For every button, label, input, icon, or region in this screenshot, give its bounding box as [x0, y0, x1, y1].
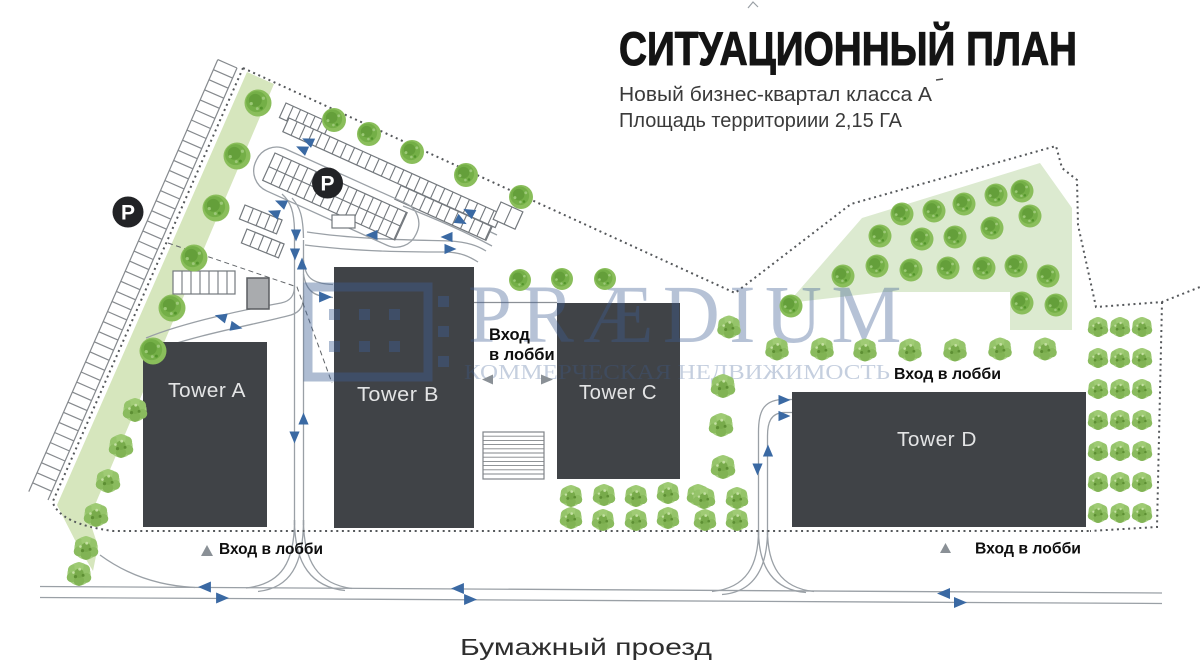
svg-text:Вход в лобби: Вход в лобби: [894, 366, 1001, 383]
svg-text:Вход в лобби: Вход в лобби: [975, 541, 1081, 558]
svg-text:Tower B: Tower B: [357, 384, 439, 406]
svg-text:СИТУАЦИОННЫЙ ПЛАН: СИТУАЦИОННЫЙ ПЛАН: [619, 22, 1077, 75]
svg-text:P: P: [121, 202, 135, 225]
svg-text:P: P: [320, 173, 334, 196]
svg-text:в лобби: в лобби: [489, 346, 555, 364]
svg-text:Новый бизнес-квартал класса А: Новый бизнес-квартал класса А: [619, 84, 933, 106]
svg-text:Tower C: Tower C: [579, 382, 657, 404]
svg-text:Бумажный проезд: Бумажный проезд: [460, 634, 712, 660]
svg-text:Вход в лобби: Вход в лобби: [219, 541, 323, 558]
svg-text:Площадь территориии 2,15 ГА: Площадь территориии 2,15 ГА: [619, 110, 903, 132]
svg-text:Вход: Вход: [489, 326, 530, 344]
svg-text:Tower D: Tower D: [897, 429, 977, 451]
svg-text:Tower A: Tower A: [168, 380, 246, 402]
